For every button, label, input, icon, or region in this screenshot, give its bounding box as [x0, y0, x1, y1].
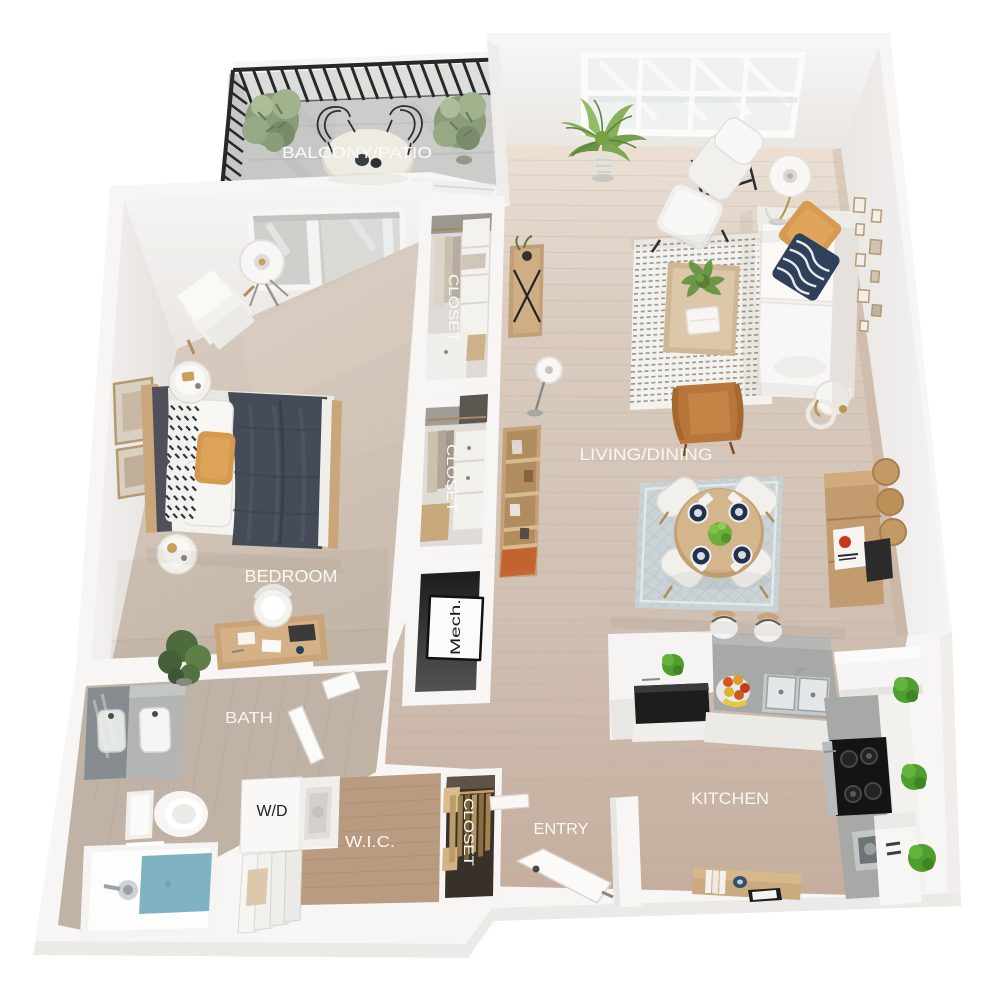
svg-text:CLOSET: CLOSET: [446, 274, 462, 343]
svg-text:W.I.C.: W.I.C.: [345, 834, 395, 851]
svg-text:ENTRY: ENTRY: [534, 821, 589, 838]
svg-text:KITCHEN: KITCHEN: [691, 790, 769, 808]
svg-text:CLOSET: CLOSET: [461, 798, 477, 867]
svg-text:BEDROOM: BEDROOM: [245, 566, 338, 586]
svg-text:BATH: BATH: [225, 710, 273, 727]
svg-text:Mech.: Mech.: [447, 599, 463, 655]
svg-text:BALCONY/PATIO: BALCONY/PATIO: [282, 145, 432, 162]
svg-text:LIVING/DINING: LIVING/DINING: [580, 445, 713, 464]
svg-text:W/D: W/D: [257, 803, 288, 820]
svg-text:CLOSET: CLOSET: [444, 444, 460, 513]
